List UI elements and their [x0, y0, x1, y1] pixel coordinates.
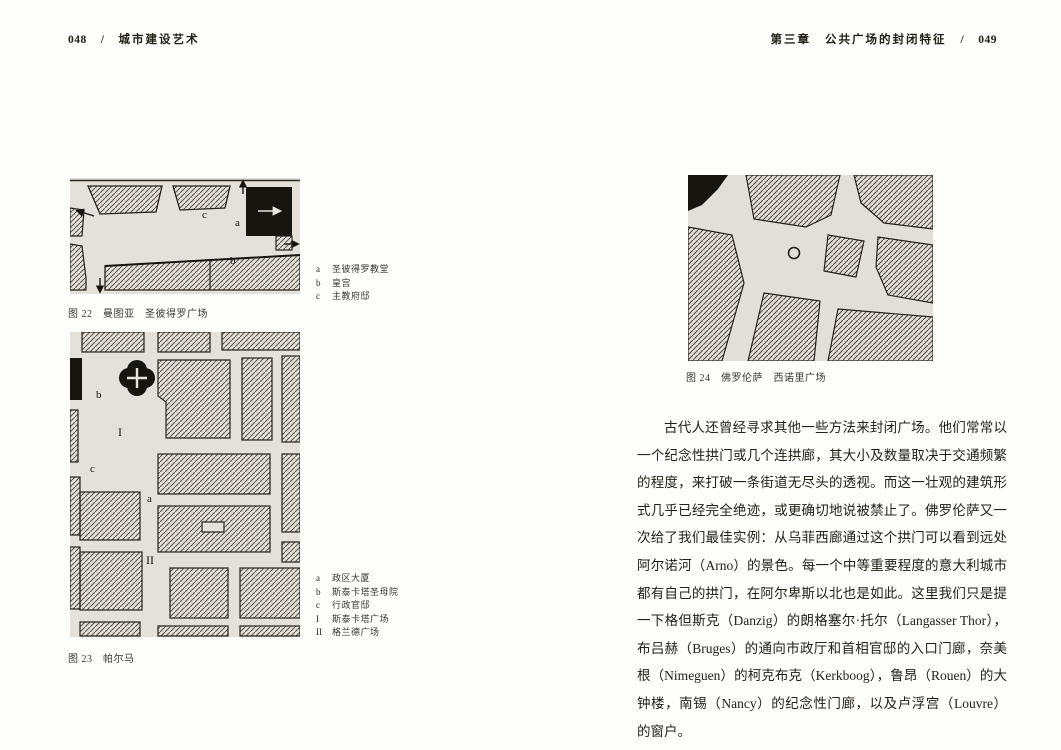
figure-24-caption: 图 24 佛罗伦萨 西诺里广场	[686, 369, 826, 384]
legend-key: c	[316, 599, 332, 613]
legend-key: b	[316, 586, 332, 600]
legend-row: I斯泰卡塔广场	[316, 613, 399, 627]
legend-label: 皇宫	[332, 278, 351, 288]
book-spread: 048/城市建设艺术 第三章公共广场的封闭特征/049	[0, 0, 1061, 750]
legend-label: 斯泰卡塔广场	[332, 614, 389, 624]
legend-label: 圣彼得罗教堂	[332, 264, 389, 274]
map-letter-c: c	[202, 209, 207, 221]
header-separator: /	[101, 34, 105, 46]
map-letter-I: I	[118, 425, 122, 439]
legend-key: II	[316, 626, 332, 640]
legend-row: a圣彼得罗教堂	[316, 263, 389, 277]
legend-key: I	[316, 613, 332, 627]
figure-24-map	[688, 175, 933, 361]
legend-key: b	[316, 277, 332, 291]
body-paragraph: 古代人还曾经寻求其他一些方法来封闭广场。他们常常以一个纪念性拱门或几个连拱廊，其…	[637, 414, 1007, 745]
legend-label: 斯泰卡塔圣母院	[332, 587, 399, 597]
legend-key: c	[316, 290, 332, 304]
legend-label: 主教府邸	[332, 291, 370, 301]
chapter-title: 公共广场的封闭特征	[825, 34, 947, 46]
map-letter-b: b	[230, 255, 236, 267]
map-letter-II: II	[146, 553, 154, 567]
figure-23-map: b I c II a	[70, 332, 300, 637]
florence-map-image	[688, 175, 933, 361]
legend-label: 格兰德广场	[332, 627, 380, 637]
legend-row: b斯泰卡塔圣母院	[316, 586, 399, 600]
left-page-header: 048/城市建设艺术	[68, 31, 199, 47]
legend-row: b皇宫	[316, 277, 389, 291]
legend-row: a政区大厦	[316, 572, 399, 586]
figure-22-legend: a圣彼得罗教堂 b皇宫 c主教府邸	[316, 263, 389, 304]
figure-23-legend: a政区大厦 b斯泰卡塔圣母院 c行政官邸 I斯泰卡塔广场 II格兰德广场	[316, 572, 399, 640]
chapter-number: 第三章	[771, 34, 812, 46]
figure-22-map: c a b	[70, 178, 300, 294]
legend-row: c行政官邸	[316, 599, 399, 613]
legend-row: c主教府邸	[316, 290, 389, 304]
map-letter-a: a	[235, 217, 240, 229]
right-page-number: 049	[978, 34, 997, 46]
header-separator-right: /	[961, 34, 965, 46]
figure-23-caption: 图 23 帕尔马	[68, 650, 135, 665]
legend-row: II格兰德广场	[316, 626, 399, 640]
mantua-map-image: c a b	[70, 178, 300, 294]
legend-label: 行政官邸	[332, 600, 370, 610]
legend-key: a	[316, 263, 332, 277]
legend-key: a	[316, 572, 332, 586]
parma-map-image: b I c II a	[70, 332, 300, 637]
map-letter-c: c	[90, 463, 95, 475]
legend-label: 政区大厦	[332, 573, 370, 583]
left-page-number: 048	[68, 34, 87, 46]
map-letter-a: a	[147, 493, 152, 505]
right-page-header: 第三章公共广场的封闭特征/049	[771, 31, 997, 47]
figure-22-caption: 图 22 曼图亚 圣彼得罗广场	[68, 305, 208, 320]
book-title: 城市建设艺术	[118, 34, 199, 46]
map-letter-b: b	[96, 389, 102, 401]
